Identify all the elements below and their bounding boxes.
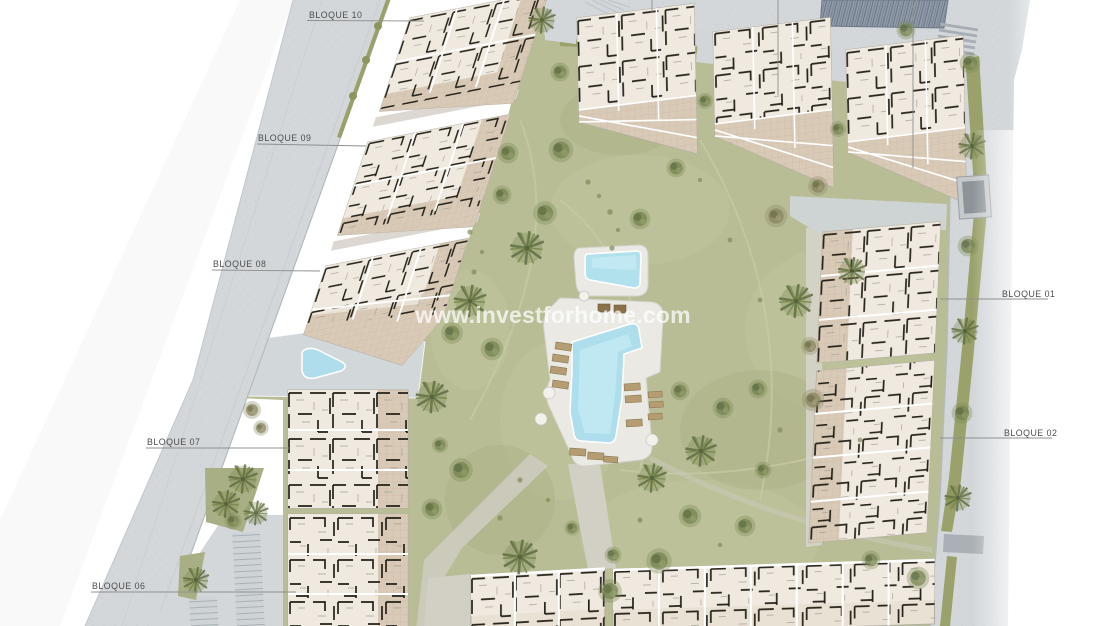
svg-text:BLOQUE 02: BLOQUE 02: [1004, 428, 1057, 438]
svg-text:BLOQUE 06: BLOQUE 06: [92, 581, 145, 591]
svg-text:BLOQUE 08: BLOQUE 08: [213, 259, 266, 269]
svg-text:BLOQUE 07: BLOQUE 07: [147, 437, 200, 447]
svg-text:BLOQUE 10: BLOQUE 10: [309, 10, 362, 20]
svg-text:BLOQUE 01: BLOQUE 01: [1002, 289, 1055, 299]
svg-text:BLOQUE 09: BLOQUE 09: [258, 133, 311, 143]
svg-text:www.investforhome.com: www.investforhome.com: [414, 302, 691, 328]
